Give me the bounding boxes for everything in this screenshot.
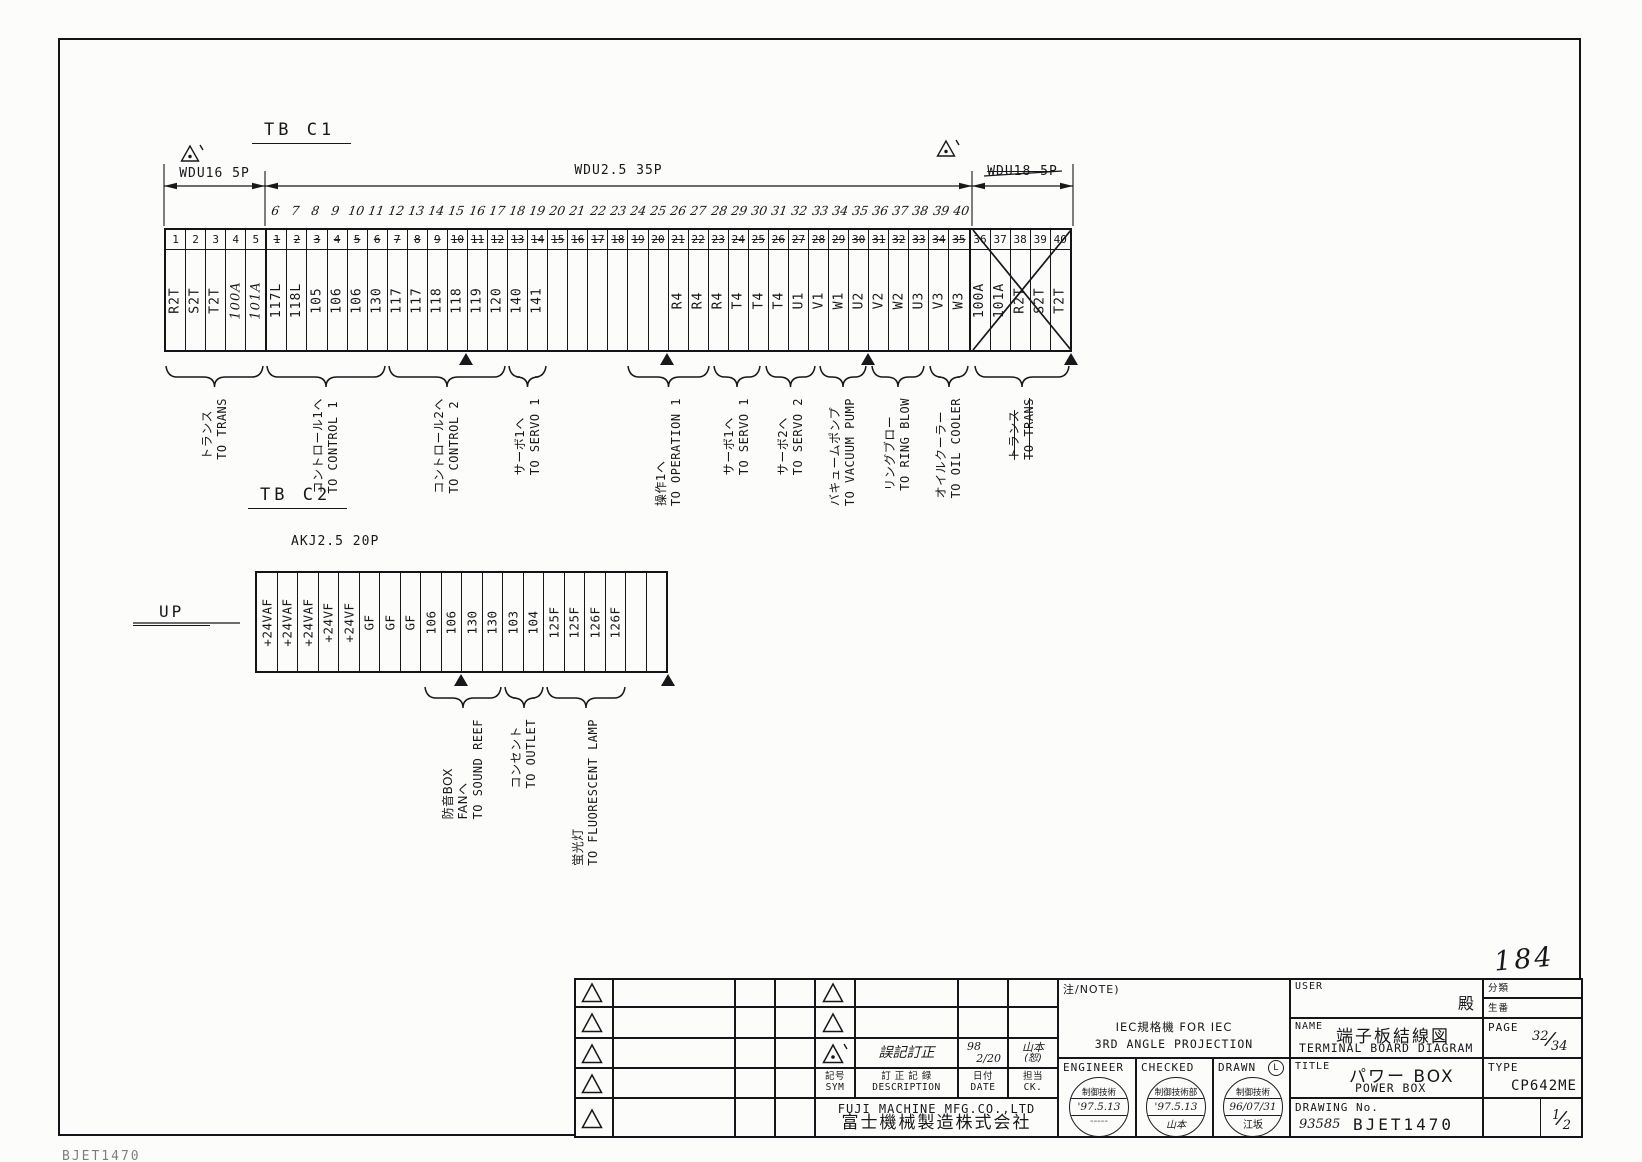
revision-ck-cell [1008, 978, 1058, 1007]
terminal-label: W2 [891, 291, 906, 309]
terminal-box: 130 [482, 573, 503, 671]
terminal-box: 39S2T [1030, 230, 1050, 350]
terminal-number: 4 [226, 230, 245, 250]
terminal-label-wrap: 100A [971, 250, 990, 350]
terminal-box: 37101A [990, 230, 1010, 350]
terminal-body: U3 [909, 250, 928, 350]
terminal-label: R2T [168, 287, 183, 313]
name-box: NAME 端子板結線図 TERMINAL BOARD DIAGRAM [1290, 1018, 1483, 1058]
checked-box: CHECKED 制御技術部 '97.5.13 山本 [1136, 1058, 1213, 1138]
series-box: 生番 [1483, 998, 1583, 1018]
terminal-box: 125F [543, 573, 564, 671]
revision-empty-cell [775, 1068, 815, 1098]
terminal-label-wrap: 141 [528, 250, 547, 350]
terminal-number: 36 [971, 230, 990, 250]
terminal-box: 1117L [265, 230, 286, 350]
cable-group-label-line: TO OPERATION 1 [669, 398, 684, 506]
cable-group-label-line: TO SERVO 1 [737, 398, 752, 475]
terminal-label: T2T [208, 287, 223, 313]
terminal-box: 103 [502, 573, 523, 671]
terminal-body: 106 [421, 573, 441, 671]
cable-group-label: サーボ2ヘTO SERVO 2 [776, 398, 806, 475]
drawn-stamp: 制御技術 96/07/31 江坂 [1223, 1077, 1283, 1137]
cable-group-label: 操作1ヘTO OPERATION 1 [654, 398, 684, 506]
terminal-label-wrap: R2T [166, 250, 185, 350]
terminal-number: 5 [246, 230, 265, 250]
terminal-body: GF [380, 573, 400, 671]
revision-empty-cell [613, 1098, 735, 1138]
checked-stamp-date: '97.5.13 [1147, 1098, 1205, 1116]
user-label: USER [1295, 981, 1323, 992]
terminal-box: 130 [461, 573, 482, 671]
terminal-box: 4106 [327, 230, 347, 350]
revision-ck: 山本 [1022, 1042, 1044, 1054]
terminal-box: +24VF [318, 573, 339, 671]
terminal-box: +24VAF [297, 573, 318, 671]
page-label: PAGE [1488, 1021, 1519, 1034]
terminal-box: 33U3 [908, 230, 928, 350]
terminal-label-wrap: GF [401, 573, 421, 671]
terminal-body: R2T [1011, 250, 1030, 350]
terminal-box: 12120 [487, 230, 507, 350]
terminal-label: 130 [485, 610, 500, 634]
terminal-label-wrap: V1 [809, 250, 828, 350]
revision-triangle-icon [580, 1072, 608, 1095]
terminal-box: 3105 [306, 230, 326, 350]
terminal-body: 130 [483, 573, 503, 671]
terminal-body: 125F [544, 573, 564, 671]
terminal-box: 14141 [527, 230, 547, 350]
terminal-label: S2T [188, 287, 203, 313]
terminal-box: 28V1 [808, 230, 828, 350]
terminal-box: 15 [547, 230, 567, 350]
revision-triangle-prime-icon [821, 1042, 849, 1065]
revision-header-en: CK. [1009, 1083, 1057, 1094]
terminal-body: 126F [606, 573, 626, 671]
terminal-box: 104 [523, 573, 544, 671]
revision-desc: 誤記訂正 [879, 1046, 935, 1061]
terminal-number: 39 [1031, 230, 1050, 250]
terminal-label: T2T [1053, 287, 1068, 313]
terminal-body: U2 [849, 250, 868, 350]
up-label: UP [133, 602, 210, 626]
cable-group-label-line: 操作1ヘ [654, 398, 669, 506]
cable-group-label: オイルクーラーTO OIL COOLER [934, 398, 964, 498]
drawn-label: DRAWN [1218, 1061, 1256, 1074]
revision-empty-cell [775, 1007, 815, 1038]
terminal-body: R4 [669, 250, 688, 350]
terminal-box: 2118L [286, 230, 306, 350]
terminal-label: U3 [911, 291, 926, 309]
terminal-box: 31V2 [868, 230, 888, 350]
terminal-body [588, 250, 607, 350]
terminal-body: R4 [709, 250, 728, 350]
terminal-label-wrap: T2T [1051, 250, 1070, 350]
terminal-label-wrap: 106 [328, 250, 347, 350]
terminal-box: 16 [567, 230, 587, 350]
terminal-body: +24VAF [278, 573, 298, 671]
revision-sym-cell [815, 1007, 855, 1038]
revision-empty-cell [735, 1068, 775, 1098]
terminal-box: 17 [587, 230, 607, 350]
terminal-number: 38 [1011, 230, 1030, 250]
renumber-value: 15 [445, 203, 468, 221]
revision-triangle-icon [580, 981, 608, 1004]
cable-group-label-line: サーボ1ヘ [722, 398, 737, 475]
revision-header-cell: 担当CK. [1008, 1068, 1058, 1098]
user-box: USER 殿 [1290, 978, 1483, 1018]
renumber-value: 34 [828, 203, 851, 221]
terminal-box: 30U2 [848, 230, 868, 350]
terminal-label: 117 [410, 287, 425, 313]
drawn-stamp-sign: 江坂 [1224, 1116, 1282, 1136]
revision-ck: (恕) [1024, 1054, 1042, 1065]
terminal-number: 33 [909, 230, 928, 250]
sheet-box: 1/2 [1483, 1098, 1583, 1138]
revision-triangle-icon [580, 1011, 608, 1034]
cable-group-label-line: TO OUTLET [524, 719, 539, 789]
terminal-label-wrap: GF [380, 573, 400, 671]
terminal-label-wrap: W2 [889, 250, 908, 350]
terminal-label-wrap: 104 [524, 573, 544, 671]
revision-ck-cell: 山本(恕) [1008, 1038, 1058, 1068]
terminal-box: 36100A [969, 230, 990, 350]
terminal-label: T4 [731, 291, 746, 309]
revision-empty-cell [613, 1007, 735, 1038]
terminal-label: +24VAF [300, 598, 315, 646]
terminal-body: 106 [442, 573, 462, 671]
terminal-number: 27 [789, 230, 808, 250]
class-box: 分類 [1483, 978, 1583, 998]
terminal-number: 13 [508, 230, 527, 250]
company-name-jp: 富士機械製造株式会社 [842, 1115, 1032, 1133]
renumber-value: 33 [808, 203, 831, 221]
revision-empty-cell [735, 1007, 775, 1038]
terminal-number: 5 [348, 230, 367, 250]
terminal-label: +24VF [341, 602, 356, 642]
dim-wdu25: WDU2.5 35P [265, 163, 972, 178]
terminal-number: 35 [949, 230, 968, 250]
renumber-value: 10 [344, 203, 367, 221]
name-en: TERMINAL BOARD DIAGRAM [1299, 1041, 1473, 1055]
revision-header-cell: 日付DATE [958, 1068, 1008, 1098]
terminal-label-wrap: U3 [909, 250, 928, 350]
sheet-value: 1/2 [1552, 1107, 1571, 1129]
terminal-label-wrap: 119 [468, 250, 487, 350]
terminal-box: GF [400, 573, 421, 671]
terminal-number: 17 [588, 230, 607, 250]
terminal-box: 5101A [245, 230, 265, 350]
terminal-label: GF [403, 614, 418, 630]
renumber-value [1030, 203, 1053, 221]
terminal-label-wrap: T2T [206, 250, 225, 350]
terminal-label-wrap: +24VAF [278, 573, 298, 671]
terminal-label: +24VF [321, 602, 336, 642]
terminal-body [568, 250, 587, 350]
terminal-box [646, 573, 667, 671]
title-box: TITLE パワー BOX POWER BOX [1290, 1058, 1483, 1098]
terminal-label-wrap: 118 [448, 250, 467, 350]
terminal-label: 119 [470, 287, 485, 313]
terminal-number: 1 [166, 230, 185, 250]
terminal-box: 19 [627, 230, 647, 350]
terminal-number: 3 [307, 230, 326, 250]
terminal-body: 125F [565, 573, 585, 671]
terminal-box: 125F [564, 573, 585, 671]
revision-triangle-icon [580, 1107, 608, 1130]
terminal-number: 28 [809, 230, 828, 250]
terminal-label: U2 [851, 291, 866, 309]
engineer-label: ENGINEER [1063, 1061, 1124, 1074]
cable-group-label-line: トランス [200, 398, 215, 460]
terminal-body: 106 [328, 250, 347, 350]
terminal-box: 21R4 [668, 230, 688, 350]
cable-group-label: コントロール2ヘTO CONTROL 2 [432, 398, 462, 494]
terminal-body: 140 [508, 250, 527, 350]
terminal-label: T4 [751, 291, 766, 309]
cable-group-label-line: FANヘ [456, 719, 471, 819]
terminal-body: T4 [749, 250, 768, 350]
terminal-label-wrap: R4 [709, 250, 728, 350]
renumber-value: 39 [929, 203, 952, 221]
terminal-number: 34 [929, 230, 948, 250]
terminal-label-wrap: U2 [849, 250, 868, 350]
renumber-value: 12 [385, 203, 408, 221]
cable-group-label: コンセントTO OUTLET [509, 719, 539, 789]
drawn-stamp-date: 96/07/31 [1224, 1098, 1282, 1116]
cable-group-label-line: オイルクーラー [934, 398, 949, 498]
revision-sym-cell [574, 978, 613, 1007]
renumber-value: 38 [909, 203, 932, 221]
cable-group-label: トランスTO TRANS [1007, 398, 1037, 460]
company-cell: FUJI MACHINE MFG.CO.,LTD富士機械製造株式会社 [815, 1098, 1058, 1138]
tb-c2-connector-label: AKJ2.5 20P [291, 534, 379, 549]
terminal-label: 100A [973, 282, 988, 317]
terminal-body: T2T [206, 250, 225, 350]
terminal-label-wrap: 106 [421, 573, 441, 671]
drawing-no-box: DRAWING No. 93585 BJET1470 [1290, 1098, 1483, 1138]
terminal-label: R4 [711, 291, 726, 309]
terminal-body: 130 [368, 250, 387, 350]
revision-desc-cell [855, 1007, 958, 1038]
terminal-box: GF [379, 573, 400, 671]
terminal-label: R2T [1013, 287, 1028, 313]
series-label: 生番 [1488, 1000, 1509, 1014]
terminal-number: 11 [468, 230, 487, 250]
revision-desc-cell: 誤記訂正 [855, 1038, 958, 1068]
terminal-label-wrap: 117 [408, 250, 427, 350]
terminal-label-wrap: 130 [462, 573, 482, 671]
terminal-body: 119 [468, 250, 487, 350]
terminal-label: 118L [289, 282, 304, 317]
terminal-label: 103 [505, 610, 520, 634]
drawing-sheet: TB C1 WDU16 5P WDU2.5 35P WDU18 5P TB C2… [0, 0, 1642, 1162]
renumber-value: 28 [707, 203, 730, 221]
terminal-body: 101A [991, 250, 1010, 350]
terminal-body: 117 [408, 250, 427, 350]
terminal-label-wrap: T4 [729, 250, 748, 350]
drawing-no-value: BJET1470 [1353, 1115, 1454, 1134]
terminal-label: 126F [608, 606, 623, 638]
terminal-box: 1R2T [166, 230, 185, 350]
terminal-label-wrap: T4 [749, 250, 768, 350]
terminal-label: 118 [450, 287, 465, 313]
terminal-label-wrap: S2T [186, 250, 205, 350]
revision-date-cell: 982/20 [958, 1038, 1008, 1068]
checked-label: CHECKED [1141, 1061, 1194, 1074]
terminal-label: V2 [871, 291, 886, 309]
cable-group-label-line: バキュームポンプ [828, 398, 843, 506]
terminal-box: 13140 [507, 230, 527, 350]
terminal-number: 12 [488, 230, 507, 250]
revision-empty-cell [775, 1038, 815, 1068]
revision-header-en: SYM [816, 1083, 854, 1094]
note-label: 注/NOTE) [1063, 981, 1120, 997]
revision-empty-cell [613, 978, 735, 1007]
drawn-box: DRAWN L 制御技術 96/07/31 江坂 [1213, 1058, 1290, 1138]
terminal-body: 101A [246, 250, 265, 350]
cable-group-label-line: サーボ2ヘ [776, 398, 791, 475]
terminal-label: 130 [370, 287, 385, 313]
terminal-number: 1 [267, 230, 286, 250]
revision-sym-cell [574, 1098, 613, 1138]
terminal-box: 18 [607, 230, 627, 350]
terminal-label-wrap: U1 [789, 250, 808, 350]
tb-c1-title: TB C1 [252, 120, 351, 144]
cable-group-label-line: TO TRANS [215, 398, 230, 460]
revision-header-en: DESCRIPTION [856, 1083, 957, 1094]
terminal-body: +24VAF [298, 573, 318, 671]
terminal-box: 34V3 [928, 230, 948, 350]
renumber-value [203, 203, 226, 221]
title-label: TITLE [1295, 1061, 1330, 1072]
terminal-number: 30 [849, 230, 868, 250]
terminal-box: 38R2T [1010, 230, 1030, 350]
cable-group-label: 防音BOXFANヘTO SOUND REEF [441, 719, 486, 819]
terminal-label: 106 [444, 610, 459, 634]
terminal-box: 8117 [407, 230, 427, 350]
terminal-body: S2T [1031, 250, 1050, 350]
cable-group-label-line: TO CONTROL 1 [326, 398, 341, 494]
cable-group-label-line: サーボ1ヘ [513, 398, 528, 475]
cable-group-label-line: TO SERVO 2 [791, 398, 806, 475]
terminal-box: 40T2T [1050, 230, 1070, 350]
terminal-label: T4 [771, 291, 786, 309]
terminal-label-wrap: +24VAF [257, 573, 277, 671]
terminal-box: 29W1 [828, 230, 848, 350]
revision-sym-cell [574, 1038, 613, 1068]
terminal-label: +24VAF [259, 598, 274, 646]
terminal-label: R4 [691, 291, 706, 309]
renumber-value [970, 203, 993, 221]
renumber-value: 23 [607, 203, 630, 221]
cable-group-label-line: 蛍光灯 [571, 719, 586, 866]
terminal-number: 32 [889, 230, 908, 250]
terminal-number: 2 [186, 230, 205, 250]
user-honorific: 殿 [1458, 990, 1474, 1014]
title-en: POWER BOX [1355, 1081, 1426, 1095]
cable-group-label-line: コントロール2ヘ [432, 398, 447, 494]
page-box: PAGE 32/34 [1483, 1018, 1583, 1058]
terminal-number: 9 [428, 230, 447, 250]
terminal-body: 103 [503, 573, 523, 671]
terminal-body: 117L [267, 250, 286, 350]
terminal-label: 117L [269, 282, 284, 317]
terminal-label: 106 [330, 287, 345, 313]
terminal-box: 20 [648, 230, 668, 350]
renumber-value: 18 [506, 203, 529, 221]
terminal-label: 125F [567, 606, 582, 638]
terminal-label-wrap: W1 [829, 250, 848, 350]
checked-stamp-dept: 制御技術部 [1147, 1078, 1205, 1098]
terminal-box: +24VAF [257, 573, 277, 671]
terminal-body: +24VAF [257, 573, 277, 671]
revision-triangle-icon [821, 1011, 849, 1034]
terminal-label: V3 [931, 291, 946, 309]
checked-stamp: 制御技術部 '97.5.13 山本 [1146, 1077, 1206, 1137]
terminal-label: S2T [1033, 287, 1048, 313]
terminal-body: +24VF [319, 573, 339, 671]
terminal-box: 7117 [387, 230, 407, 350]
terminal-label: +24VAF [280, 598, 295, 646]
terminal-label-wrap: 118 [428, 250, 447, 350]
cable-group-label: サーボ1ヘTO SERVO 1 [513, 398, 543, 475]
renumber-value [1050, 203, 1073, 221]
terminal-body [626, 573, 646, 671]
terminal-label-wrap: 103 [503, 573, 523, 671]
renumber-value: 21 [566, 203, 589, 221]
terminal-label-wrap: GF [360, 573, 380, 671]
cable-group-label: リングブローTO RING BLOW [883, 398, 913, 491]
revision-triangle-icon [821, 981, 849, 1004]
terminal-label-wrap: 126F [585, 573, 605, 671]
terminal-number: 25 [749, 230, 768, 250]
name-label: NAME [1295, 1021, 1323, 1032]
terminal-label-wrap: 130 [368, 250, 387, 350]
terminal-box: +24VF [338, 573, 359, 671]
type-box: TYPE CP642ME [1483, 1058, 1583, 1098]
terminal-box: 3T2T [205, 230, 225, 350]
renumber-value [243, 203, 266, 221]
terminal-number: 10 [448, 230, 467, 250]
revision-sym-cell [815, 978, 855, 1007]
engineer-stamp-date: '97.5.13 [1070, 1098, 1128, 1116]
checked-stamp-sign: 山本 [1147, 1116, 1205, 1136]
terminal-box [625, 573, 646, 671]
terminal-body: T2T [1051, 250, 1070, 350]
cable-group-label: コントロール1ヘTO CONTROL 1 [311, 398, 341, 494]
renumber-value: 11 [364, 203, 387, 221]
terminal-body: W3 [949, 250, 968, 350]
terminal-box: 24T4 [728, 230, 748, 350]
terminal-label: 101A [248, 281, 263, 319]
cable-group-label-line: TO TRANS [1022, 398, 1037, 460]
revision-sym-cell [574, 1068, 613, 1098]
revision-empty-cell [775, 978, 815, 1007]
renumber-value: 40 [949, 203, 972, 221]
page-value: 32/34 [1532, 1028, 1568, 1050]
terminal-number: 22 [689, 230, 708, 250]
terminal-box: 11119 [467, 230, 487, 350]
terminal-body: 104 [524, 573, 544, 671]
terminal-label-wrap: 118L [287, 250, 306, 350]
terminal-box: 26T4 [768, 230, 788, 350]
terminal-label: 126F [587, 606, 602, 638]
cable-group-label-line: TO OIL COOLER [949, 398, 964, 498]
terminal-number: 24 [729, 230, 748, 250]
terminal-body: 105 [307, 250, 326, 350]
terminal-box: 22R4 [688, 230, 708, 350]
